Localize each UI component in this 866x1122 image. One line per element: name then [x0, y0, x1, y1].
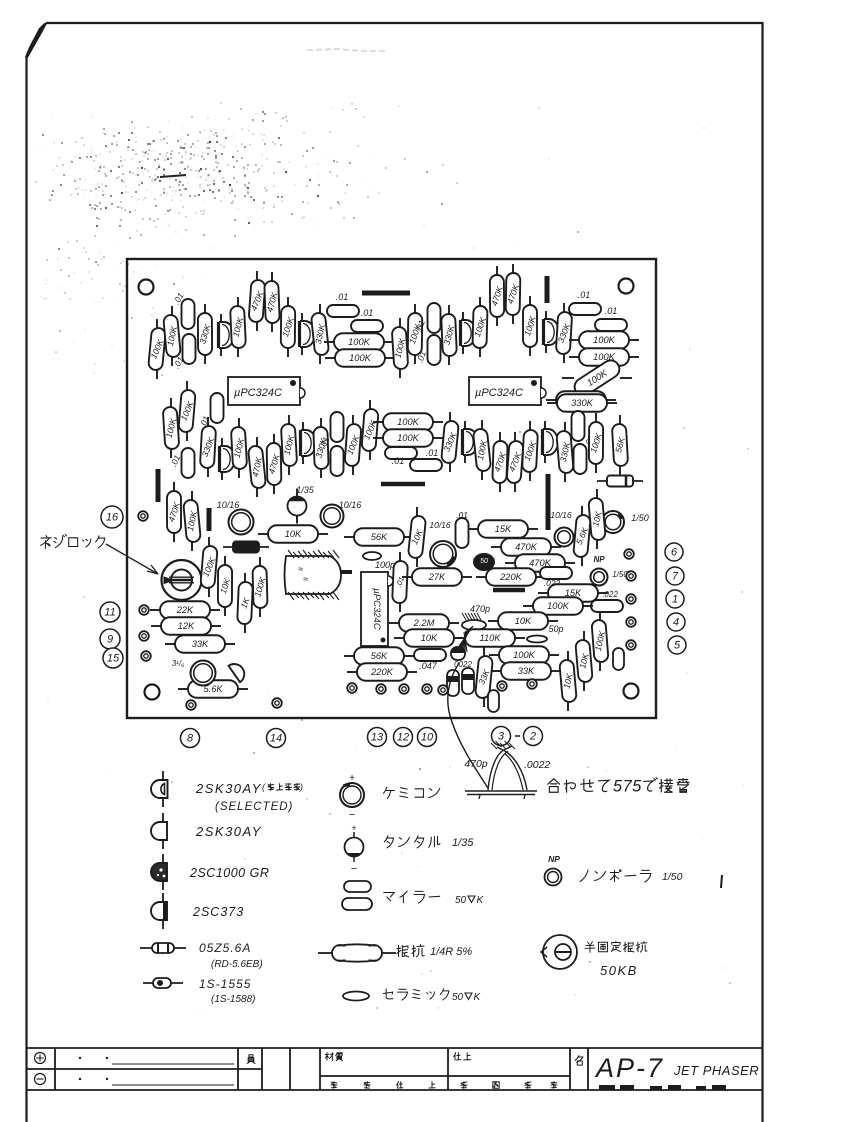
svg-text:2SC373: 2SC373	[192, 905, 244, 919]
svg-text:15: 15	[107, 653, 120, 665]
svg-text:10K: 10K	[285, 529, 302, 539]
svg-text:.0022: .0022	[524, 759, 550, 771]
svg-text:100K: 100K	[397, 417, 420, 427]
svg-text:9: 9	[107, 634, 113, 646]
svg-text:7: 7	[672, 571, 679, 583]
svg-text:): )	[299, 782, 303, 792]
svg-text:≈: ≈	[303, 574, 308, 584]
svg-text:5: 5	[613, 778, 623, 796]
svg-text:.01: .01	[605, 306, 618, 316]
svg-text:≈: ≈	[298, 564, 303, 574]
svg-text:.01: .01	[426, 448, 439, 458]
svg-text:AP-7: AP-7	[594, 1053, 664, 1083]
svg-text:JET PHASER: JET PHASER	[673, 1063, 759, 1078]
svg-text:NP: NP	[548, 854, 560, 864]
svg-text:05Z5.6A: 05Z5.6A	[199, 941, 251, 955]
svg-text:100K: 100K	[593, 335, 616, 345]
svg-text:−: −	[351, 863, 357, 875]
svg-text:7: 7	[623, 778, 633, 796]
svg-text:100K: 100K	[348, 337, 371, 347]
svg-text:50: 50	[452, 992, 464, 1003]
svg-text:.022: .022	[602, 590, 618, 599]
svg-text:12K: 12K	[178, 621, 195, 631]
svg-text:50: 50	[480, 558, 488, 565]
svg-text:+: +	[351, 823, 356, 833]
svg-text:100K: 100K	[513, 650, 536, 660]
svg-text:6: 6	[671, 547, 678, 559]
svg-text:.01: .01	[361, 308, 374, 318]
svg-text:(RD-5.6EB): (RD-5.6EB)	[211, 959, 263, 970]
svg-text:12: 12	[397, 732, 409, 744]
svg-text:µPC324C: µPC324C	[234, 387, 282, 399]
svg-text:µPC324C: µPC324C	[371, 588, 382, 630]
svg-text:4: 4	[673, 617, 679, 629]
svg-text:470K: 470K	[515, 542, 538, 552]
svg-text:.01: .01	[578, 290, 591, 300]
svg-text:−: −	[349, 809, 355, 821]
svg-text:5: 5	[632, 778, 642, 796]
svg-text:.01: .01	[392, 456, 405, 466]
svg-text:22K: 22K	[176, 605, 194, 615]
svg-text:10: 10	[421, 732, 434, 744]
svg-text:10/16: 10/16	[339, 500, 362, 510]
svg-text:33K: 33K	[518, 666, 535, 676]
svg-text:(SELECTED): (SELECTED)	[215, 801, 293, 813]
svg-text:3: 3	[498, 731, 505, 743]
svg-text:1/35: 1/35	[452, 837, 474, 849]
svg-text:10/16: 10/16	[550, 510, 572, 520]
svg-text:.047: .047	[419, 661, 438, 671]
svg-text:2.2M: 2.2M	[413, 618, 435, 628]
svg-text:100K: 100K	[349, 353, 372, 363]
svg-text:10/16: 10/16	[217, 500, 240, 510]
svg-text:8: 8	[187, 733, 194, 745]
svg-text:11: 11	[104, 607, 115, 619]
svg-text:.01: .01	[456, 510, 468, 520]
svg-text:220K: 220K	[499, 572, 523, 582]
svg-text:NP: NP	[593, 555, 605, 564]
svg-text:50p: 50p	[548, 624, 563, 634]
svg-text:56K: 56K	[371, 651, 388, 661]
svg-text:110K: 110K	[479, 633, 501, 643]
svg-text:470p: 470p	[464, 758, 488, 770]
svg-text:50: 50	[455, 895, 467, 906]
svg-text:330K: 330K	[571, 398, 594, 408]
svg-text:470p: 470p	[470, 604, 490, 614]
svg-text:10K: 10K	[421, 633, 438, 643]
svg-text:15K: 15K	[495, 524, 512, 534]
svg-text:1/35: 1/35	[296, 485, 315, 495]
svg-text:5: 5	[674, 640, 681, 652]
svg-text:.01: .01	[336, 292, 349, 302]
svg-text:2: 2	[529, 731, 536, 743]
svg-text:2SK30AY: 2SK30AY	[195, 781, 262, 796]
svg-text:3¹/₆: 3¹/₆	[172, 659, 185, 668]
svg-text:220K: 220K	[370, 667, 394, 677]
svg-text:10K: 10K	[515, 616, 532, 626]
svg-text:1S-1555: 1S-1555	[199, 977, 251, 991]
svg-text:14: 14	[270, 733, 282, 745]
svg-text:2SK30AY: 2SK30AY	[195, 824, 262, 839]
svg-text:27K: 27K	[428, 572, 446, 582]
svg-text:1/50: 1/50	[631, 513, 649, 523]
svg-text:13: 13	[371, 732, 384, 744]
svg-text:100p: 100p	[375, 560, 395, 570]
svg-text:100K: 100K	[547, 601, 570, 611]
svg-text:1/50: 1/50	[662, 871, 683, 883]
svg-text:50KB: 50KB	[600, 963, 638, 978]
svg-text:2SC1000 GR: 2SC1000 GR	[189, 866, 269, 880]
svg-text:10/16: 10/16	[429, 520, 451, 530]
svg-text:56K: 56K	[371, 532, 388, 542]
svg-text:1/4R 5%: 1/4R 5%	[430, 946, 472, 958]
svg-text:µPC324C: µPC324C	[475, 387, 523, 399]
svg-text:33K: 33K	[192, 639, 209, 649]
svg-text:16: 16	[106, 512, 119, 524]
svg-text:100K: 100K	[397, 433, 420, 443]
svg-text:1: 1	[672, 594, 678, 606]
svg-text:(1S-1588): (1S-1588)	[211, 994, 255, 1005]
